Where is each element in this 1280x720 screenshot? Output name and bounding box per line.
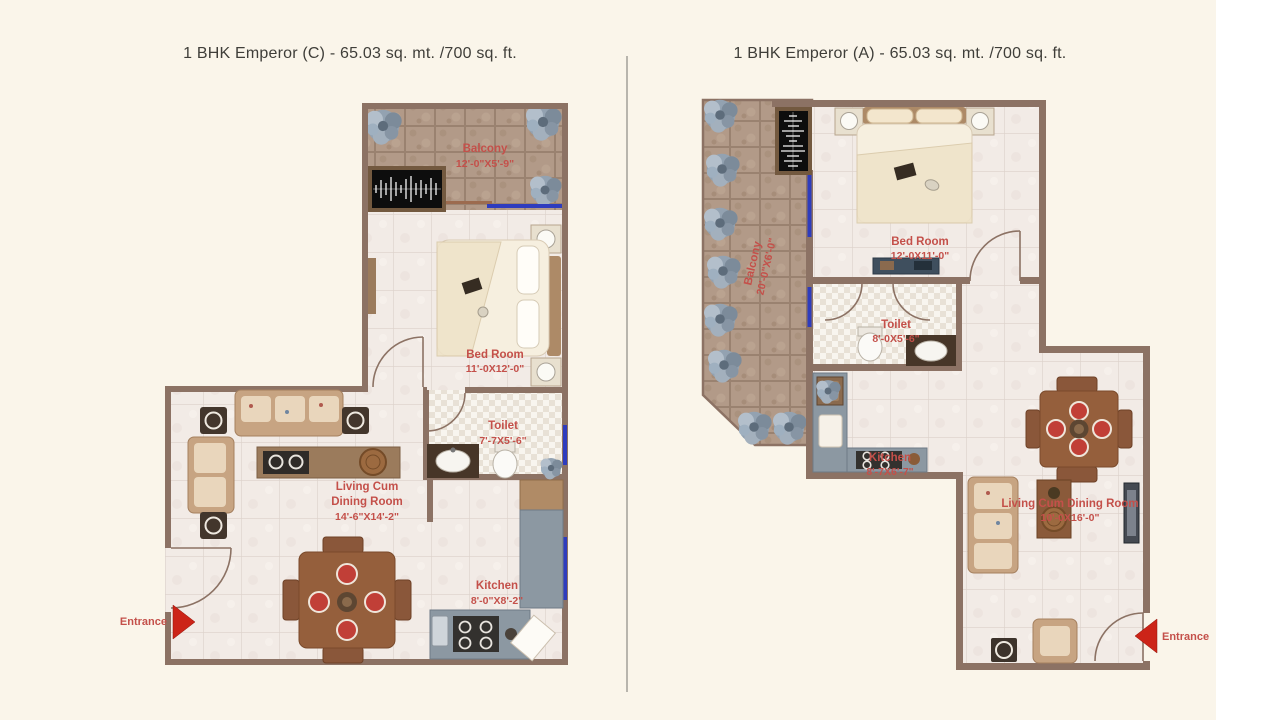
window-marker bbox=[808, 175, 812, 237]
entrance-label: Entrance bbox=[1162, 631, 1209, 643]
living-dims: 10'-0X16'-0" bbox=[1040, 512, 1099, 524]
living-dims: 14'-6"X14'-2" bbox=[335, 511, 399, 523]
page-margin bbox=[1216, 0, 1280, 720]
panel-divider bbox=[626, 56, 628, 692]
toilet-name: Toilet bbox=[488, 420, 518, 432]
window-marker bbox=[487, 204, 562, 208]
wall-shelf bbox=[368, 258, 376, 314]
wardrobe-graphic bbox=[368, 166, 446, 212]
kitchen-dims: 8'-7X6'-7" bbox=[866, 466, 913, 478]
wardrobe-graphic bbox=[775, 107, 812, 175]
tv-unit-graphic bbox=[1124, 483, 1139, 543]
plan-title-a: 1 BHK Emperor (A) - 65.03 sq. mt. /700 s… bbox=[645, 45, 1155, 63]
balcony-dims: 12'-0"X5'-9" bbox=[456, 158, 514, 170]
kitchen-dims: 8'-0"X8'-2" bbox=[471, 595, 523, 607]
living-name-1: Living Cum bbox=[336, 481, 399, 493]
bedroom-name: Bed Room bbox=[891, 236, 949, 248]
floor-plan-a: Entrance Balcony 20'-0"X6'-0" Bed Room 1… bbox=[700, 95, 1212, 675]
kitchen-platform-graphic bbox=[257, 447, 400, 478]
plan-title-c: 1 BHK Emperor (C) - 65.03 sq. mt. /700 s… bbox=[95, 45, 605, 63]
entrance-label: Entrance bbox=[120, 616, 167, 628]
balcony-name: Balcony bbox=[463, 143, 508, 155]
floor-plan-c: Entrance Balcony 12'-0"X5'-9" Bed Room 1… bbox=[110, 100, 570, 670]
window-marker bbox=[808, 287, 812, 327]
living-floor bbox=[956, 283, 1045, 664]
bedroom-name: Bed Room bbox=[466, 349, 524, 361]
window-marker bbox=[563, 425, 567, 465]
dining-set-graphic bbox=[283, 537, 411, 663]
living-name-2: Dining Room bbox=[331, 496, 403, 508]
bedroom-dims: 11'-0X12'-0" bbox=[466, 363, 524, 375]
kitchen-name: Kitchen bbox=[869, 452, 911, 464]
toilet-name: Toilet bbox=[881, 319, 911, 331]
bed-graphic bbox=[835, 107, 994, 223]
kitchen-name: Kitchen bbox=[476, 580, 518, 592]
living-name: Living Cum Dining Room bbox=[1001, 498, 1138, 510]
bedroom-dims: 12'-0X11'-0" bbox=[891, 250, 949, 262]
toilet-dims: 8'-0X5'-6" bbox=[872, 333, 919, 345]
toilet-dims: 7'-7X5'-6" bbox=[479, 435, 526, 447]
window-marker bbox=[563, 537, 567, 600]
